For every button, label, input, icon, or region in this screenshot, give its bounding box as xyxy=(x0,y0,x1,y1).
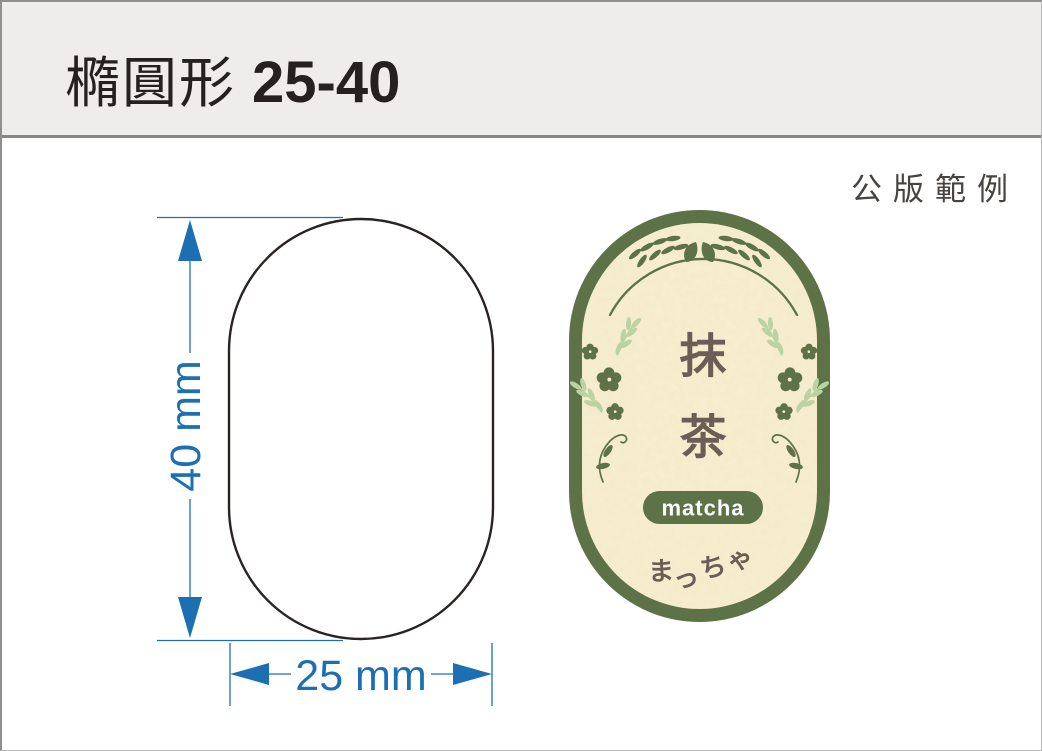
arrow-right-icon xyxy=(453,663,492,685)
product-name-char-top: 抹 xyxy=(680,330,728,383)
dimension-diagram: 40 mm 25 mm xyxy=(2,2,1042,751)
width-dimension-label: 25 mm xyxy=(295,652,426,700)
oval-outline xyxy=(229,219,493,639)
sample-sticker: 抹 茶 matcha ま っ ち ゃ xyxy=(569,210,830,622)
page: 橢圓形 25-40 公版範例 40 mm 25 mm xyxy=(0,0,1042,751)
arrow-up-icon xyxy=(178,220,202,261)
matcha-badge-text: matcha xyxy=(661,496,744,521)
arrow-down-icon xyxy=(178,597,202,638)
kana-char: っ xyxy=(671,562,700,595)
kana-char: ま xyxy=(647,556,674,587)
product-name-char-bottom: 茶 xyxy=(680,411,728,464)
arrow-left-icon xyxy=(230,663,269,685)
height-dimension-label: 40 mm xyxy=(162,360,210,491)
